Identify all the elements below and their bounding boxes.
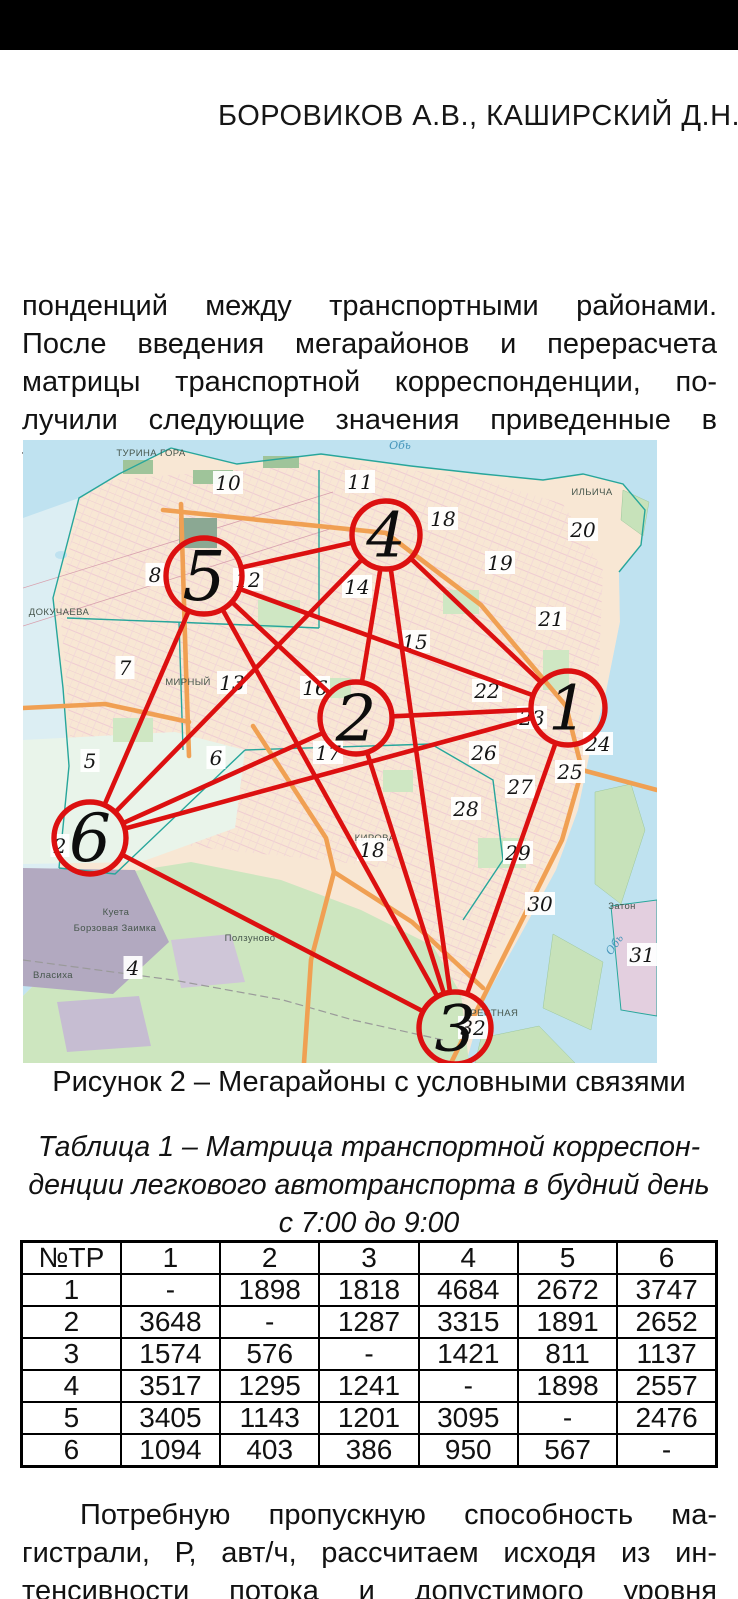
table-title-line: денции легкового автотранспорта в будний… [10,1166,728,1204]
district-label: 5 [84,749,97,773]
figure-caption: Рисунок 2 – Мегарайоны с условными связя… [0,1066,738,1099]
matrix-cell: 950 [419,1434,518,1467]
matrix-cell: 1891 [518,1306,617,1338]
matrix-cell: 4684 [419,1274,518,1306]
megaraion-number-5: 5 [182,538,225,617]
matrix-cell: 567 [518,1434,617,1467]
matrix-cell: 576 [220,1338,319,1370]
col-header: 2 [220,1242,319,1275]
matrix-cell: 1137 [617,1338,716,1370]
city-map-image: ТУРИНА ГОРАОбьИЛЬИЧАДОКУЧАЕВАМИРНЫЙКИРОВ… [23,440,657,1063]
megaraion-number-3: 3 [435,992,476,1063]
matrix-cell: - [319,1338,418,1370]
col-header: 3 [319,1242,418,1275]
correspondence-table: №ТР123456 1-1898181846842672374723648-12… [20,1240,718,1468]
table-head: №ТР123456 [22,1242,717,1275]
place-label: Куета [103,907,130,918]
district-label: 21 [537,607,563,631]
col-header: №ТР [22,1242,121,1275]
text-line: После введения мегарайонов и перерасчета [22,325,717,363]
col-header: 4 [419,1242,518,1275]
matrix-cell: - [121,1274,220,1306]
place-label: ДОКУЧАЕВА [29,607,90,618]
district-label: 25 [556,760,582,784]
matrix-cell: - [617,1434,716,1467]
matrix-cell: 403 [220,1434,319,1467]
row-header: 3 [22,1338,121,1370]
matrix-cell: 1143 [220,1402,319,1434]
header-row: №ТР123456 [22,1242,717,1275]
matrix-cell: 811 [518,1338,617,1370]
matrix-cell: 3747 [617,1274,716,1306]
table-body: 1-1898181846842672374723648-128733151891… [22,1274,717,1467]
matrix-cell: 1421 [419,1338,518,1370]
table-row: 53405114312013095-2476 [22,1402,717,1434]
district-label: 27 [506,775,533,799]
district-label: 26 [470,741,497,765]
text-line: понденций между транспортными районами. [22,287,717,325]
matrix-cell: 1201 [319,1402,418,1434]
matrix-cell: 1898 [518,1370,617,1402]
matrix-cell: - [419,1370,518,1402]
text-line: Потребную пропускную способность ма- [22,1496,717,1534]
matrix-cell: 2652 [617,1306,716,1338]
table-row: 23648-1287331518912652 [22,1306,717,1338]
megaraion-number-1: 1 [548,672,587,745]
megaraion-number-2: 2 [335,682,377,756]
col-header: 1 [121,1242,220,1275]
top-black-bar [0,0,738,50]
matrix-cell: 2476 [617,1402,716,1434]
district-label: 11 [347,470,372,494]
running-head: БОРОВИКОВ А.В., КАШИРСКИЙ Д.Н. [218,100,738,133]
place-label: Обь [389,440,411,452]
table-title-line: с 7:00 до 9:00 [10,1204,728,1242]
district-label: 18 [430,507,455,531]
megaraion-number-6: 6 [69,800,111,877]
table-title-line: Таблица 1 – Матрица транспортной корресп… [10,1128,728,1166]
matrix-cell: - [518,1402,617,1434]
text-line: матрицы транспортной корреспонденции, по… [22,363,717,401]
district-label: 28 [452,797,478,821]
district-label: 14 [344,575,369,599]
place-label: Борзовая Заимка [74,923,157,934]
table-row: 4351712951241-18982557 [22,1370,717,1402]
district-label: 19 [487,551,513,575]
table-row: 61094403386950567- [22,1434,717,1467]
text-line: лучили следующие значения приведенные в [22,401,717,439]
place-label: Затон [608,901,636,912]
table-row: 1-18981818468426723747 [22,1274,717,1306]
district-label: 8 [149,563,162,587]
paragraph-bottom: Потребную пропускную способность ма-гист… [22,1496,717,1599]
matrix-cell: 1898 [220,1274,319,1306]
district-label: 20 [569,518,596,542]
district-label: 6 [210,746,223,770]
matrix-cell: 1295 [220,1370,319,1402]
matrix-cell: 1241 [319,1370,418,1402]
district-label: 4 [126,956,140,980]
district-label: 7 [119,656,132,680]
matrix-cell: 2557 [617,1370,716,1402]
table-row: 31574576-14218111137 [22,1338,717,1370]
row-header: 5 [22,1402,121,1434]
figure-map: ТУРИНА ГОРАОбьИЛЬИЧАДОКУЧАЕВАМИРНЫЙКИРОВ… [23,440,657,1063]
correspondence-matrix: №ТР123456 1-1898181846842672374723648-12… [20,1240,718,1468]
matrix-cell: 3095 [419,1402,518,1434]
matrix-cell: 3517 [121,1370,220,1402]
district-label: 31 [629,943,654,967]
matrix-cell: 1287 [319,1306,418,1338]
place-label: ИЛЬИЧА [571,487,612,498]
megaraion-number-4: 4 [365,499,405,572]
matrix-cell: - [220,1306,319,1338]
matrix-cell: 1574 [121,1338,220,1370]
district-label: 30 [527,892,553,916]
place-label: Ползуново [225,933,276,944]
place-label: ТУРИНА ГОРА [116,448,186,459]
matrix-cell: 2672 [518,1274,617,1306]
row-header: 6 [22,1434,121,1467]
col-header: 6 [617,1242,716,1275]
place-label: МИРНЫЙ [165,676,211,688]
district-label: 10 [215,471,241,495]
text-line: гистрали, Р, авт/ч, рассчитаем исходя из… [22,1534,717,1572]
row-header: 1 [22,1274,121,1306]
matrix-cell: 3315 [419,1306,518,1338]
place-label: Власиха [33,970,73,981]
table-title: Таблица 1 – Матрица транспортной корресп… [10,1128,728,1242]
matrix-cell: 3648 [121,1306,220,1338]
district-label: 24 [584,732,610,756]
matrix-cell: 3405 [121,1402,220,1434]
paper-page: БОРОВИКОВ А.В., КАШИРСКИЙ Д.Н. понденций… [0,0,738,1599]
matrix-cell: 1818 [319,1274,418,1306]
row-header: 2 [22,1306,121,1338]
row-header: 4 [22,1370,121,1402]
matrix-cell: 386 [319,1434,418,1467]
matrix-cell: 1094 [121,1434,220,1467]
text-line: тенсивности потока и допустимого уровня [22,1572,717,1599]
col-header: 5 [518,1242,617,1275]
